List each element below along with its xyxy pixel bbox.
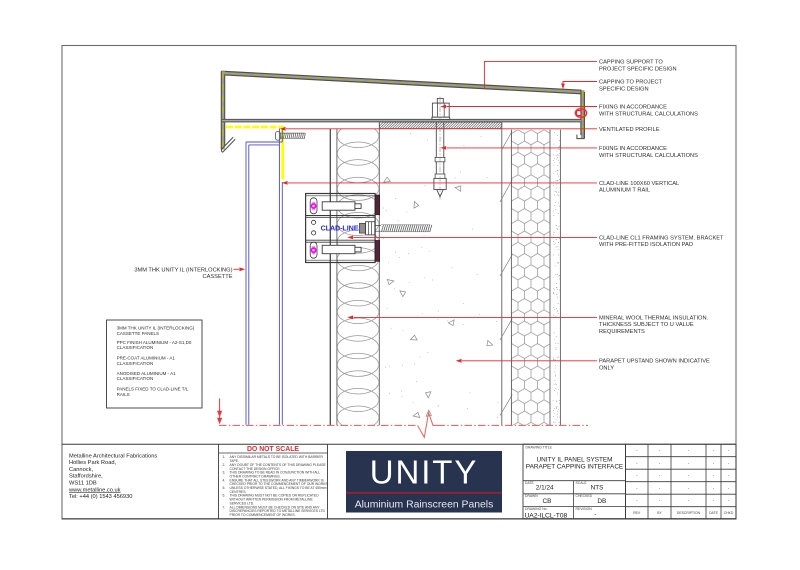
svg-text:ANODISED ALUMINIUM - A1: ANODISED ALUMINIUM - A1 xyxy=(117,371,177,376)
svg-text:CHECKED: CHECKED xyxy=(576,494,593,498)
svg-text:4.: 4. xyxy=(223,478,226,482)
svg-text:ANY DISSIMILAR METALS TO BE IS: ANY DISSIMILAR METALS TO BE ISOLATED WIT… xyxy=(230,455,324,459)
svg-text:SPECIFIC DESIGN: SPECIFIC DESIGN xyxy=(599,86,649,92)
svg-text:REQUIREMENTS: REQUIREMENTS xyxy=(599,329,645,335)
svg-text:REVISION: REVISION xyxy=(576,507,593,511)
svg-text:Staffordshire,: Staffordshire, xyxy=(69,474,103,480)
svg-text:DO NOT SCALE: DO NOT SCALE xyxy=(247,446,299,453)
svg-text:DRAWING TITLE: DRAWING TITLE xyxy=(526,446,553,450)
svg-text:-: - xyxy=(594,511,596,518)
svg-text:PANELS FIXED TO CLAD-LINE T/L: PANELS FIXED TO CLAD-LINE T/L xyxy=(117,386,189,391)
svg-text:DB: DB xyxy=(597,498,606,505)
svg-text:CLASSIFICATION: CLASSIFICATION xyxy=(117,361,154,366)
svg-text:2/1/24: 2/1/24 xyxy=(536,485,554,492)
svg-text:CAPPING TO PROJECT: CAPPING TO PROJECT xyxy=(599,80,663,86)
svg-text:CLASSIFICATION: CLASSIFICATION xyxy=(117,376,154,381)
svg-text:PPC FINISH ALUMINIUM - A2-S1,D: PPC FINISH ALUMINIUM - A2-S1,D0 xyxy=(117,340,192,345)
svg-text:UA2-ILCL-T08: UA2-ILCL-T08 xyxy=(525,513,568,520)
svg-text:www.metalline.co.uk: www.metalline.co.uk xyxy=(68,487,121,493)
svg-text:UNITY: UNITY xyxy=(370,454,479,491)
svg-text:WS11 1DB: WS11 1DB xyxy=(69,481,97,487)
svg-text:3MM THK UNITY IL (INTERLOCKING: 3MM THK UNITY IL (INTERLOCKING) xyxy=(134,267,232,273)
svg-text:3.: 3. xyxy=(223,471,226,475)
svg-text:CLAD-LINE 100X60 VERTICAL: CLAD-LINE 100X60 VERTICAL xyxy=(599,181,679,187)
svg-text:THICKNESS SUBJECT TO U VALUE: THICKNESS SUBJECT TO U VALUE xyxy=(599,322,694,328)
svg-text:DATE: DATE xyxy=(525,481,535,485)
svg-text:Hollies Park Road,: Hollies Park Road, xyxy=(69,460,117,466)
svg-text:WITH PRE-FITTED ISOLATION PAD: WITH PRE-FITTED ISOLATION PAD xyxy=(599,242,693,248)
svg-text:CASSETTE PANELS: CASSETTE PANELS xyxy=(117,331,159,336)
svg-text:DRAWN: DRAWN xyxy=(525,494,538,498)
svg-text:CLAD-LINE: CLAD-LINE xyxy=(321,223,359,232)
svg-text:5.: 5. xyxy=(223,486,226,490)
svg-text:DESCRIPTION: DESCRIPTION xyxy=(677,511,701,515)
svg-text:WITH STRUCTURAL CALCULATIONS: WITH STRUCTURAL CALCULATIONS xyxy=(599,153,698,159)
svg-text:PARAPET UPSTAND SHOWN INDICATI: PARAPET UPSTAND SHOWN INDICATIVE xyxy=(599,359,710,365)
svg-text:CLASSIFICATION: CLASSIFICATION xyxy=(117,345,154,350)
svg-text:ONLY: ONLY xyxy=(599,365,614,371)
svg-text:Aluminium Rainscreen Panels: Aluminium Rainscreen Panels xyxy=(355,499,494,510)
svg-text:PARAPET CAPPING INTERFACE: PARAPET CAPPING INTERFACE xyxy=(526,464,623,471)
svg-text:BY: BY xyxy=(657,511,662,515)
svg-text:CHKD: CHKD xyxy=(724,511,734,515)
svg-text:DRAWING No.: DRAWING No. xyxy=(525,507,548,511)
svg-text:7.: 7. xyxy=(223,505,226,509)
svg-text:PRIOR TO COMMENCEMENT OF WORKS: PRIOR TO COMMENCEMENT OF WORKS. xyxy=(230,513,296,517)
svg-text:REV: REV xyxy=(633,511,641,515)
svg-text:FIXING IN ACCORDANCE: FIXING IN ACCORDANCE xyxy=(599,146,667,152)
svg-text:6.: 6. xyxy=(223,494,226,498)
svg-text:Metalline Architectural Fabric: Metalline Architectural Fabrications xyxy=(69,453,157,459)
svg-text:NTS: NTS xyxy=(591,485,604,492)
svg-text:3MM THK UNITY IL (INTERLOCKING: 3MM THK UNITY IL (INTERLOCKING) xyxy=(117,326,195,331)
svg-text:VENTILATED PROFILE: VENTILATED PROFILE xyxy=(599,127,660,133)
svg-text:MINERAL WOOL THERMAL INSULATIO: MINERAL WOOL THERMAL INSULATION. xyxy=(599,315,709,321)
svg-text:CB: CB xyxy=(543,498,552,505)
svg-text:ALUMINIUM T RAIL: ALUMINIUM T RAIL xyxy=(599,188,650,194)
svg-text:1.: 1. xyxy=(223,455,226,459)
svg-text:FIXING IN ACCORDANCE: FIXING IN ACCORDANCE xyxy=(599,105,667,111)
svg-text:Cannock,: Cannock, xyxy=(69,467,93,473)
svg-text:WITH STRUCTURAL CALCULATIONS: WITH STRUCTURAL CALCULATIONS xyxy=(599,111,698,117)
svg-text:PROJECT SPECIFIC DESIGN: PROJECT SPECIFIC DESIGN xyxy=(599,66,677,72)
svg-text:RAILS: RAILS xyxy=(117,392,130,397)
svg-text:PRE-COAT ALUMINIUM - A1: PRE-COAT ALUMINIUM - A1 xyxy=(117,355,176,360)
svg-text:UNITY IL PANEL SYSTEM: UNITY IL PANEL SYSTEM xyxy=(537,457,613,464)
svg-text:CAPPING SUPPORT TO: CAPPING SUPPORT TO xyxy=(599,60,663,66)
svg-text:2.: 2. xyxy=(223,463,226,467)
svg-text:SCALE: SCALE xyxy=(576,481,588,485)
svg-text:Tel: +44 (0) 1543 456930: Tel: +44 (0) 1543 456930 xyxy=(69,494,132,500)
svg-text:DATE: DATE xyxy=(709,511,719,515)
svg-text:CLAD-LINE CL1 FRAMING SYSTEM.: CLAD-LINE CL1 FRAMING SYSTEM. BRACKET xyxy=(599,235,724,241)
svg-text:CASSETTE: CASSETTE xyxy=(202,274,232,280)
